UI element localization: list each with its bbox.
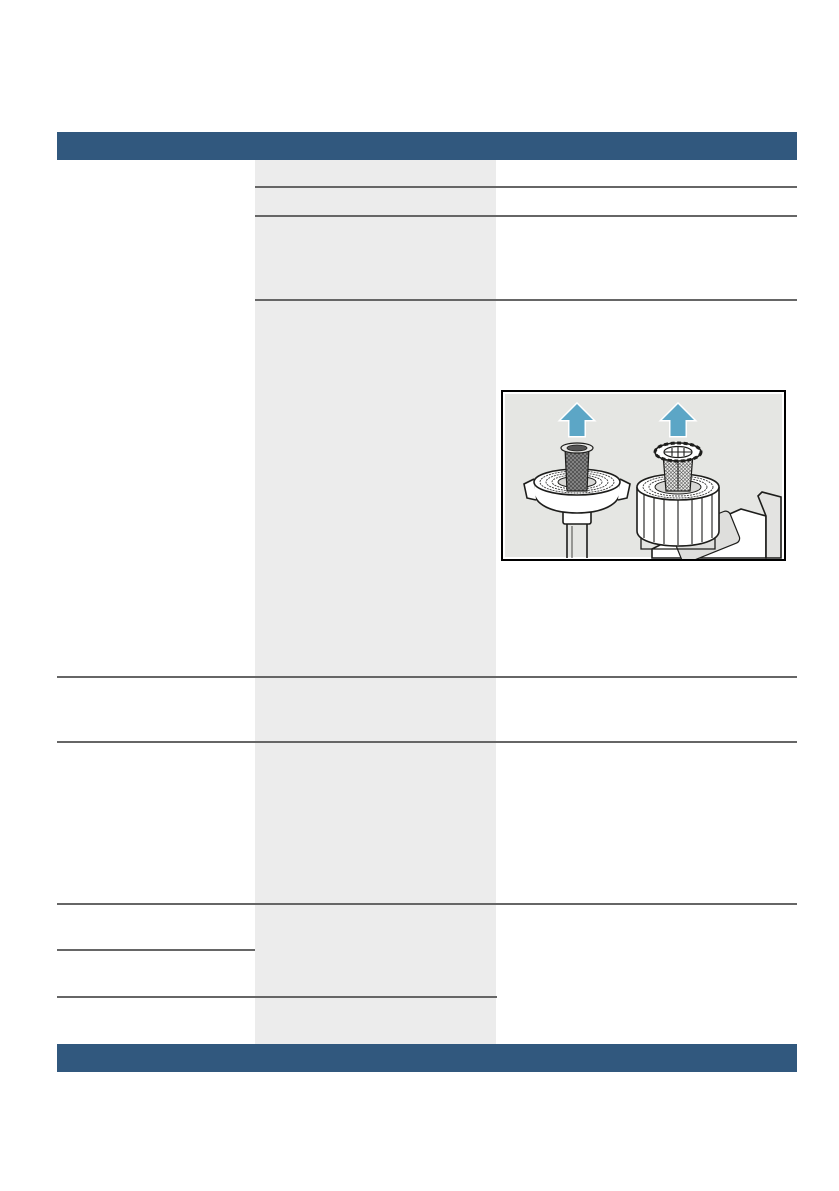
arrow-up-icon xyxy=(561,404,593,436)
rule-line xyxy=(255,215,797,217)
figure-frame xyxy=(501,390,786,561)
rule-line xyxy=(255,299,797,301)
manual-page xyxy=(0,0,839,1191)
aquastop-strainer-drawing xyxy=(637,443,781,559)
footer-band xyxy=(57,1044,797,1072)
arrow-up-icon xyxy=(662,404,694,436)
rule-line xyxy=(255,186,797,188)
rule-line xyxy=(57,676,797,678)
rule-line xyxy=(57,741,797,743)
hose-nut-filter-drawing xyxy=(524,443,630,558)
hose-filter-illustration-svg xyxy=(503,392,784,559)
rule-line xyxy=(57,903,797,905)
header-band xyxy=(57,132,797,160)
rule-line xyxy=(57,996,497,998)
table-middle-column-shading xyxy=(255,160,496,1044)
rule-line xyxy=(57,949,255,951)
